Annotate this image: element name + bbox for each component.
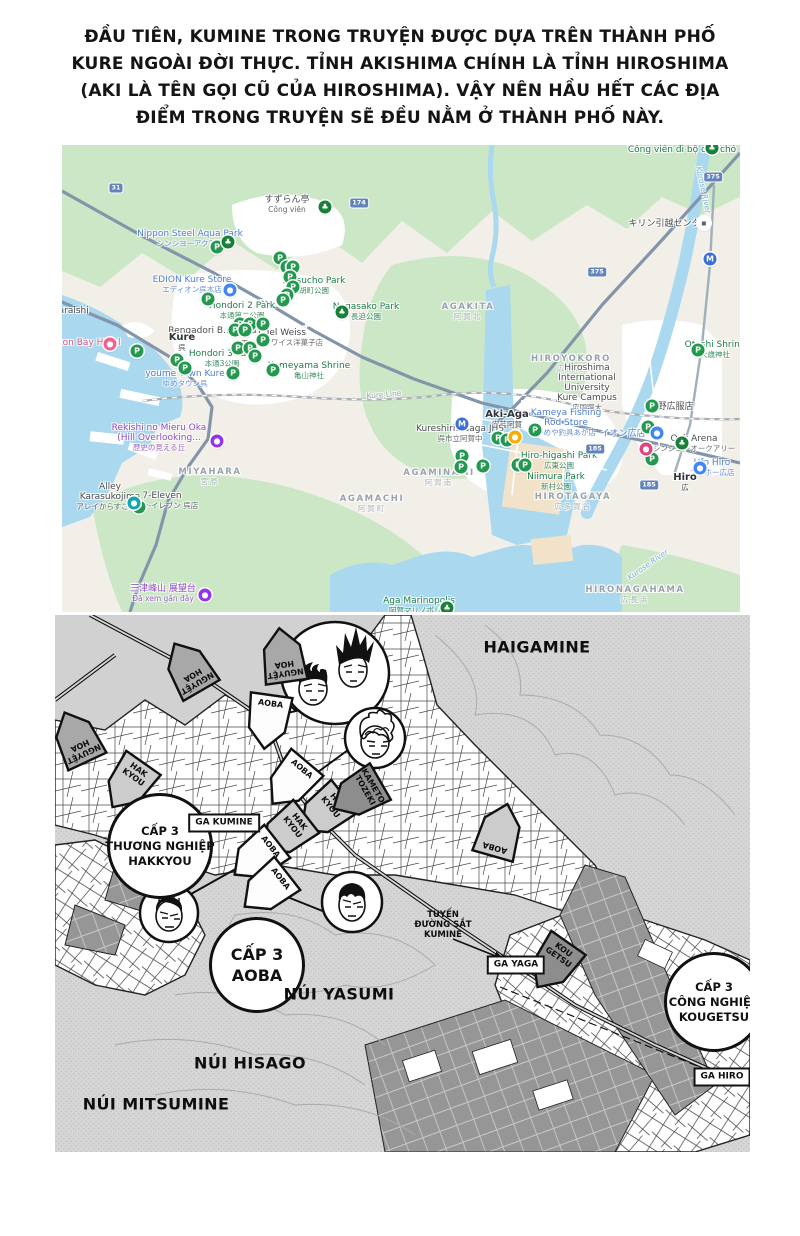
region-name-label: NÚI HISAGO xyxy=(194,1054,306,1073)
region-name-label: NÚI YASUMI xyxy=(284,985,395,1004)
map-label[interactable]: Rekishi no Mieru Oka(Hill Overlooking...… xyxy=(112,423,207,453)
route-shield: 375 xyxy=(588,268,606,277)
route-shield: 174 xyxy=(350,199,368,208)
map-label[interactable]: Niimura Park新村公園 xyxy=(527,472,585,492)
route-shield: 31 xyxy=(109,184,122,193)
route-shield: 375 xyxy=(704,173,722,182)
parking-marker[interactable]: P xyxy=(267,364,280,377)
station-box-label: GA HIRO xyxy=(694,1068,750,1087)
parking-marker[interactable]: P xyxy=(257,318,270,331)
mover-marker[interactable]: ▪ xyxy=(698,217,711,230)
hotel-marker[interactable]: ● xyxy=(104,338,117,351)
intro-line: KURE NGOÀI ĐỜI THỰC. TỈNH AKISHIMA CHÍNH… xyxy=(40,51,760,78)
parking-marker[interactable]: P xyxy=(202,293,215,306)
school-pennant-marker: AOBA xyxy=(241,690,295,754)
station-box-label: GA KUMINE xyxy=(188,814,260,833)
store-marker[interactable]: ● xyxy=(224,284,237,297)
parking-marker[interactable]: P xyxy=(249,350,262,363)
attraction-marker[interactable]: ● xyxy=(128,497,141,510)
parking-marker[interactable]: P xyxy=(529,424,542,437)
parking-marker[interactable]: P xyxy=(646,400,659,413)
character-face-bubble xyxy=(322,872,382,932)
parking-marker[interactable]: P xyxy=(227,367,240,380)
map-label: AGAMACHI阿賀町 xyxy=(340,494,405,514)
map-label[interactable]: Kameyama Shrine亀山神社 xyxy=(268,361,350,381)
character-face-bubble xyxy=(345,708,405,768)
route-shield: 185 xyxy=(640,481,658,490)
map-label[interactable]: イオン広店 xyxy=(600,429,645,439)
park-marker[interactable]: ♣ xyxy=(676,437,689,450)
park-marker[interactable]: ♣ xyxy=(222,236,235,249)
route-shield: 185 xyxy=(586,445,604,454)
cafe-marker[interactable]: ● xyxy=(509,431,522,444)
store-marker[interactable]: ● xyxy=(640,443,653,456)
parking-marker[interactable]: P xyxy=(477,460,490,473)
transit-marker[interactable]: M xyxy=(704,253,717,266)
school-pennant-marker: NGUYỆT HOA xyxy=(256,623,310,687)
map-label[interactable]: Hiro-higashi Park広東公園 xyxy=(521,451,597,471)
parking-marker[interactable]: P xyxy=(519,459,532,472)
park-marker[interactable]: ♣ xyxy=(336,306,349,319)
map-label[interactable]: Oak Arenaシンシヨーオークアリー xyxy=(653,434,736,454)
recently-viewed-marker[interactable]: ● xyxy=(199,589,212,602)
intro-line: ĐẦU TIÊN, KUMINE TRONG TRUYỆN ĐƯỢC DỰA T… xyxy=(40,24,760,51)
map-label[interactable]: 三津峰山 展望台Đã xem gần đây xyxy=(130,584,196,604)
map-label: MIYAHARA宮原 xyxy=(178,467,241,487)
map-label[interactable]: すずらん亭Công viên xyxy=(264,195,309,215)
parking-marker[interactable]: P xyxy=(455,461,468,474)
region-name-label: NÚI MITSUMINE xyxy=(83,1095,230,1114)
map-label[interactable]: HiroshimaInternationalUniversityKure Cam… xyxy=(557,363,617,413)
intro-line: (AKI LÀ TÊN GỌI CŨ CỦA HIROSHIMA). VẬY N… xyxy=(40,78,760,105)
map-label: AGAKITA阿賀北 xyxy=(442,302,495,322)
transit-marker[interactable]: M xyxy=(456,418,469,431)
intro-text: ĐẦU TIÊN, KUMINE TRONG TRUYỆN ĐƯỢC DỰA T… xyxy=(40,24,760,132)
map-label[interactable]: Hiro広 xyxy=(673,473,697,493)
store-marker[interactable]: ● xyxy=(651,427,664,440)
region-name-label: HAIGAMINE xyxy=(483,638,590,657)
google-map-screenshot[interactable]: すずらん亭Công viênNippon Steel Aqua Parkシンシヨ… xyxy=(62,145,740,612)
map-label: HIRONAGAHAMA広長浜 xyxy=(585,585,684,605)
parking-marker[interactable]: P xyxy=(277,294,290,307)
parking-marker[interactable]: P xyxy=(692,344,705,357)
map-label[interactable]: Kameya FishingRod Storeかめや釣具あが店 xyxy=(531,408,602,438)
parking-marker[interactable]: P xyxy=(239,324,252,337)
railway-note-label: TUYẾNĐƯỜNG SẮTKUMINE xyxy=(414,910,471,940)
park-marker[interactable]: ♣ xyxy=(441,602,454,613)
manga-info-page: ĐẦU TIÊN, KUMINE TRONG TRUYỆN ĐƯỢC DỰA T… xyxy=(0,0,800,1236)
station-box-label: GA YAGA xyxy=(487,956,545,975)
map-label: HIROTAGAYA広多賀谷 xyxy=(535,492,611,512)
store-marker[interactable]: ● xyxy=(694,462,707,475)
map-label[interactable]: Công viên đi bộ cho chó xyxy=(628,145,736,155)
map-label[interactable]: EDION Kure Storeエディオン呉本店 xyxy=(153,275,232,295)
intro-line: ĐIỂM TRONG TRUYỆN SẼ ĐỀU NẰM Ở THÀNH PHỐ… xyxy=(40,105,760,132)
park-marker[interactable]: ♣ xyxy=(319,201,332,214)
parking-marker[interactable]: P xyxy=(131,345,144,358)
parking-marker[interactable]: P xyxy=(257,334,270,347)
parking-marker[interactable]: P xyxy=(179,362,192,375)
school-circle-label: CẤP 3THƯƠNG NGHIỆPHAKKYOU xyxy=(107,793,213,899)
map-label[interactable]: waraishi xyxy=(62,306,89,316)
recently-viewed-marker[interactable]: ● xyxy=(211,435,224,448)
manga-map: NGUYỆT HOANGUYỆT HOANGUYỆT HOAAOBAAOBAHA… xyxy=(55,615,750,1152)
